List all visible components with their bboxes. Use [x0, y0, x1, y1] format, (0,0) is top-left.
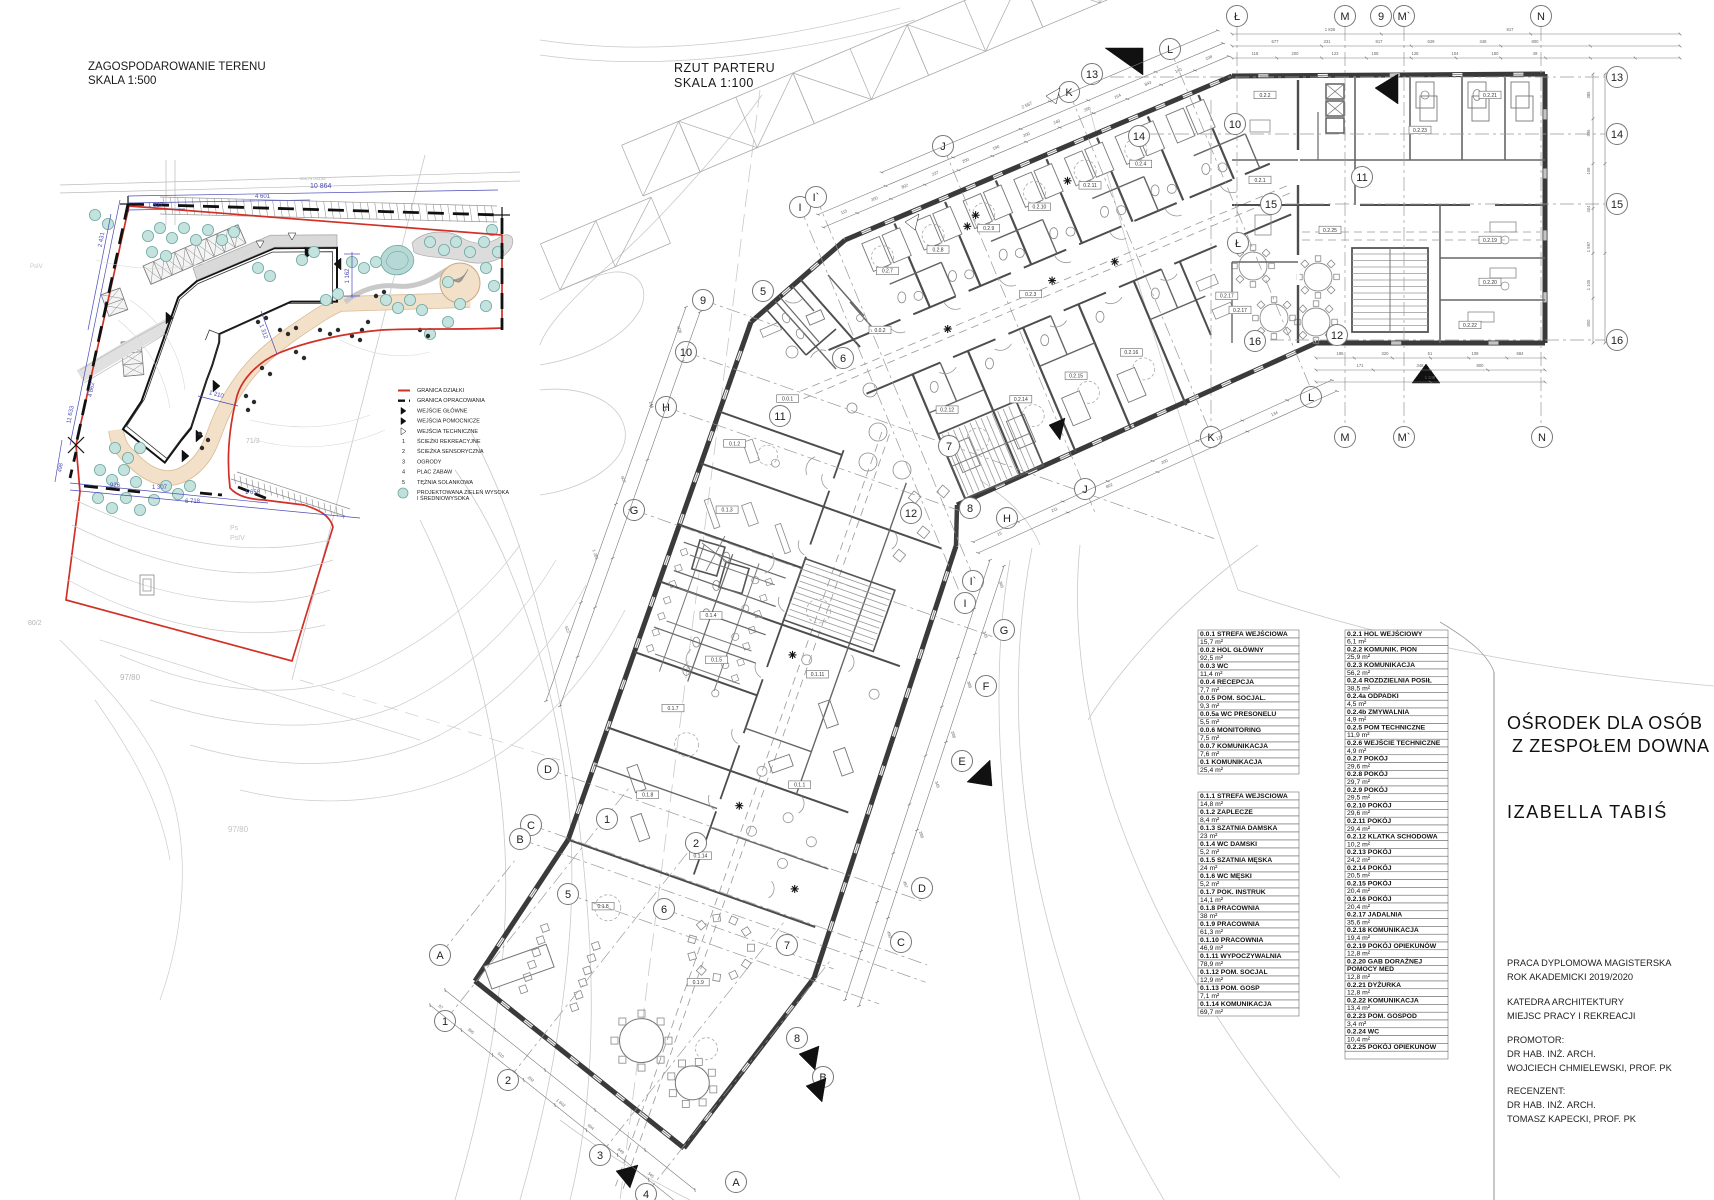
- svg-text:0.2.16: 0.2.16: [1124, 350, 1138, 356]
- svg-text:0.1.11: 0.1.11: [811, 672, 825, 678]
- svg-text:0.2.14 POKÓJ: 0.2.14 POKÓJ: [1347, 863, 1392, 872]
- svg-text:0.2.23 POM. GOSPOD: 0.2.23 POM. GOSPOD: [1347, 1013, 1417, 1020]
- svg-text:4,9 m²: 4,9 m²: [1347, 748, 1367, 755]
- svg-text:0.1.4 WC DAMSKI: 0.1.4 WC DAMSKI: [1200, 841, 1257, 848]
- svg-text:0.1.5: 0.1.5: [711, 658, 722, 664]
- svg-text:5,2 m²: 5,2 m²: [1200, 881, 1220, 888]
- svg-text:0.1.2 ZAPLECZE: 0.1.2 ZAPLECZE: [1200, 809, 1253, 816]
- svg-text:0.2.19: 0.2.19: [1483, 238, 1497, 244]
- svg-text:OŚRODEK DLA OSÓB: OŚRODEK DLA OSÓB: [1507, 712, 1703, 733]
- svg-text:0.1.1 STREFA WEJSCIOWA: 0.1.1 STREFA WEJSCIOWA: [1200, 793, 1288, 800]
- svg-text:29,6 m²: 29,6 m²: [1347, 810, 1371, 817]
- svg-text:0.2.17 JADALNIA: 0.2.17 JADALNIA: [1347, 912, 1402, 919]
- svg-text:29,5 m²: 29,5 m²: [1347, 795, 1371, 802]
- svg-text:L: L: [1308, 392, 1314, 404]
- svg-text:20,4 m²: 20,4 m²: [1347, 888, 1371, 895]
- svg-text:14,8 m²: 14,8 m²: [1200, 801, 1224, 808]
- svg-text:1 627: 1 627: [148, 203, 164, 209]
- svg-text:0.2.23: 0.2.23: [1413, 128, 1427, 134]
- svg-text:123: 123: [1332, 51, 1340, 56]
- svg-text:0.0.7 KOMUNIKACJA: 0.0.7 KOMUNIKACJA: [1200, 743, 1268, 750]
- svg-text:GRANICA OPRACOWANIA: GRANICA OPRACOWANIA: [417, 398, 485, 404]
- svg-text:0.2.20: 0.2.20: [1483, 280, 1497, 286]
- svg-text:4: 4: [402, 470, 405, 476]
- svg-text:9: 9: [1378, 11, 1384, 23]
- svg-text:12,8 m²: 12,8 m²: [1347, 990, 1371, 997]
- svg-text:10: 10: [680, 347, 692, 359]
- svg-text:9,3 m²: 9,3 m²: [1200, 703, 1220, 710]
- svg-text:336: 336: [1586, 129, 1591, 137]
- svg-text:5,5 m²: 5,5 m²: [1200, 719, 1220, 726]
- svg-text:0.2.20 GAB DORAŹNEJ: 0.2.20 GAB DORAŹNEJ: [1347, 956, 1422, 965]
- svg-text:B: B: [516, 834, 523, 846]
- svg-text:0.1.14 KOMUNIKACJA: 0.1.14 KOMUNIKACJA: [1200, 1001, 1272, 1008]
- svg-text:14: 14: [1611, 129, 1623, 141]
- svg-text:PRACA DYPLOMOWA MAGISTERSKA: PRACA DYPLOMOWA MAGISTERSKA: [1507, 958, 1672, 968]
- svg-text:Ps: Ps: [230, 525, 239, 532]
- svg-text:0.1.9: 0.1.9: [693, 980, 704, 986]
- svg-text:108: 108: [1372, 51, 1380, 56]
- svg-text:3: 3: [597, 1150, 603, 1162]
- svg-text:1 162: 1 162: [345, 268, 351, 284]
- svg-text:0.1.1: 0.1.1: [794, 783, 805, 789]
- svg-text:38,5 m²: 38,5 m²: [1347, 685, 1371, 692]
- svg-text:0.1.8: 0.1.8: [642, 792, 653, 798]
- svg-text:171: 171: [1357, 363, 1365, 368]
- svg-text:78,9 m²: 78,9 m²: [1200, 961, 1224, 968]
- svg-text:0.2.15 POKÓJ: 0.2.15 POKÓJ: [1347, 878, 1392, 887]
- svg-text:12: 12: [905, 508, 917, 520]
- svg-text:POMOCY MED: POMOCY MED: [1347, 966, 1394, 973]
- svg-text:0.2.22: 0.2.22: [1463, 323, 1477, 329]
- svg-text:SKALA 1:500: SKALA 1:500: [88, 75, 156, 87]
- svg-text:E: E: [958, 756, 965, 768]
- svg-text:0.2.3: 0.2.3: [1025, 292, 1036, 298]
- svg-text:C: C: [527, 820, 535, 832]
- svg-text:RZUT PARTERU: RZUT PARTERU: [674, 61, 775, 75]
- svg-text:ZAGOSPODAROWANIE TERENU: ZAGOSPODAROWANIE TERENU: [88, 61, 266, 73]
- svg-text:N: N: [1538, 432, 1546, 444]
- svg-text:49: 49: [1533, 51, 1538, 56]
- svg-text:7: 7: [946, 441, 952, 453]
- svg-text:35,6 m²: 35,6 m²: [1347, 919, 1371, 926]
- svg-text:24,2 m²: 24,2 m²: [1347, 857, 1371, 864]
- svg-text:11,4 m²: 11,4 m²: [1200, 671, 1223, 678]
- svg-text:0.2.12 KLATKA SCHODOWA: 0.2.12 KLATKA SCHODOWA: [1347, 834, 1438, 841]
- svg-text:Z ZESPOŁEM DOWNA: Z ZESPOŁEM DOWNA: [1512, 736, 1710, 756]
- svg-text:6: 6: [661, 904, 667, 916]
- svg-text:WEJŚCIA TECHNICZNE: WEJŚCIA TECHNICZNE: [417, 427, 478, 435]
- svg-text:817: 817: [1376, 39, 1384, 44]
- svg-text:I`: I`: [813, 192, 820, 204]
- svg-text:13: 13: [1086, 69, 1098, 81]
- svg-text:8: 8: [967, 503, 973, 515]
- svg-text:0.2.17: 0.2.17: [1233, 308, 1247, 314]
- svg-text:51: 51: [1428, 351, 1433, 356]
- svg-text:0.1.11 WYPOCZYWALNIA: 0.1.11 WYPOCZYWALNIA: [1200, 953, 1282, 960]
- svg-text:11,9 m²: 11,9 m²: [1347, 732, 1370, 739]
- svg-text:800: 800: [1477, 363, 1485, 368]
- svg-text:0.1.2: 0.1.2: [729, 441, 740, 447]
- svg-text:12,9 m²: 12,9 m²: [1200, 977, 1224, 984]
- svg-text:0.2.5 POM TECHNICZNE: 0.2.5 POM TECHNICZNE: [1347, 724, 1426, 731]
- svg-text:29,7 m²: 29,7 m²: [1347, 779, 1371, 786]
- svg-text:0.2.4a ODPADKI: 0.2.4a ODPADKI: [1347, 693, 1399, 700]
- svg-text:15,7 m²: 15,7 m²: [1200, 639, 1224, 646]
- svg-text:0.2.10 POKÓJ: 0.2.10 POKÓJ: [1347, 800, 1392, 809]
- svg-text:180: 180: [1492, 51, 1500, 56]
- svg-text:M`: M`: [1398, 11, 1411, 23]
- svg-text:16: 16: [1249, 336, 1261, 348]
- svg-text:0.0.2 HOL GŁÓWNY: 0.0.2 HOL GŁÓWNY: [1200, 645, 1264, 654]
- svg-text:K: K: [1207, 432, 1215, 444]
- svg-text:D: D: [918, 883, 926, 895]
- svg-text:13: 13: [1611, 72, 1623, 84]
- svg-text:0.2.9 POKÓJ: 0.2.9 POKÓJ: [1347, 785, 1388, 794]
- svg-text:WEJŚCIE GŁÓWNE: WEJŚCIE GŁÓWNE: [417, 406, 468, 414]
- svg-text:0.2.2: 0.2.2: [1259, 93, 1270, 99]
- svg-text:0.1 KOMUNIKACJA: 0.1 KOMUNIKACJA: [1200, 759, 1262, 766]
- svg-text:0.2.14: 0.2.14: [1014, 397, 1028, 403]
- svg-text:5,2 m²: 5,2 m²: [1200, 849, 1220, 856]
- svg-text:46,9 m²: 46,9 m²: [1200, 945, 1224, 952]
- svg-text:629: 629: [1428, 39, 1436, 44]
- svg-text:104: 104: [1452, 51, 1460, 56]
- svg-text:7,6 m²: 7,6 m²: [1200, 751, 1220, 758]
- svg-text:7: 7: [784, 940, 790, 952]
- svg-text:23 m²: 23 m²: [1200, 833, 1218, 840]
- svg-text:0.0.4 RECEPCJA: 0.0.4 RECEPCJA: [1200, 679, 1254, 686]
- svg-text:PsIV: PsIV: [230, 535, 245, 542]
- svg-text:0.0.5 POM. SOCJAL.: 0.0.5 POM. SOCJAL.: [1200, 695, 1266, 702]
- svg-text:MIEJSC PRACY I REKREACJI: MIEJSC PRACY I REKREACJI: [1507, 1011, 1635, 1021]
- svg-text:13,4 m²: 13,4 m²: [1347, 1005, 1371, 1012]
- svg-text:0.0.1 STREFA WEJŚCIOWA: 0.0.1 STREFA WEJŚCIOWA: [1200, 629, 1288, 638]
- svg-text:0.2.18 KOMUNIKACJA: 0.2.18 KOMUNIKACJA: [1347, 927, 1419, 934]
- svg-text:80/2: 80/2: [28, 620, 42, 627]
- svg-text:0.1.3: 0.1.3: [722, 508, 733, 514]
- svg-text:4,5 m²: 4,5 m²: [1347, 701, 1367, 708]
- svg-text:0.2.21: 0.2.21: [1483, 93, 1497, 99]
- svg-text:12,8 m²: 12,8 m²: [1347, 974, 1371, 981]
- svg-text:5: 5: [402, 480, 405, 486]
- svg-text:0.2.16 POKÓJ: 0.2.16 POKÓJ: [1347, 894, 1392, 903]
- svg-text:92,5 m²: 92,5 m²: [1200, 655, 1224, 662]
- svg-text:684: 684: [1517, 351, 1525, 356]
- svg-text:6: 6: [840, 353, 846, 365]
- svg-text:J: J: [1082, 484, 1088, 496]
- svg-text:10,2 m²: 10,2 m²: [1347, 841, 1371, 848]
- svg-text:0.2.17: 0.2.17: [1220, 294, 1234, 300]
- svg-text:0.1.8 PRACOWNIA: 0.1.8 PRACOWNIA: [1200, 905, 1260, 912]
- svg-text:0.2.10: 0.2.10: [1032, 205, 1046, 211]
- svg-text:0.1.6 WC MĘSKI: 0.1.6 WC MĘSKI: [1200, 873, 1252, 880]
- svg-text:20,5 m²: 20,5 m²: [1347, 873, 1371, 880]
- svg-text:14,1 m²: 14,1 m²: [1200, 897, 1224, 904]
- svg-text:800: 800: [1532, 39, 1540, 44]
- svg-text:0.1.10 PRACOWNIA: 0.1.10 PRACOWNIA: [1200, 937, 1264, 944]
- svg-text:200: 200: [1292, 51, 1300, 56]
- svg-text:A: A: [732, 1177, 740, 1189]
- svg-text:0.0.6 MONITORING: 0.0.6 MONITORING: [1200, 727, 1261, 734]
- svg-text:4 601: 4 601: [255, 194, 271, 200]
- svg-text:I: I: [798, 202, 801, 214]
- svg-text:H: H: [1003, 513, 1011, 525]
- svg-text:38 m²: 38 m²: [1200, 913, 1218, 920]
- svg-text:C: C: [897, 937, 905, 949]
- svg-text:14: 14: [1133, 131, 1145, 143]
- svg-text:61,3 m²: 61,3 m²: [1200, 929, 1224, 936]
- svg-text:404: 404: [1586, 205, 1591, 213]
- svg-text:0.2.15: 0.2.15: [1069, 374, 1083, 380]
- svg-text:SKALA 1:100: SKALA 1:100: [674, 76, 754, 90]
- svg-text:2: 2: [402, 449, 405, 455]
- svg-text:I: I: [963, 598, 966, 610]
- svg-text:0.0.2: 0.0.2: [874, 328, 885, 334]
- svg-text:2: 2: [693, 838, 699, 850]
- svg-text:0.0.1: 0.0.1: [782, 396, 793, 402]
- svg-text:10 864: 10 864: [310, 183, 332, 190]
- svg-text:0.2.9: 0.2.9: [983, 226, 994, 232]
- svg-text:M: M: [1340, 11, 1349, 23]
- svg-text:TOMASZ KAPECKI, PROF. PK: TOMASZ KAPECKI, PROF. PK: [1507, 1114, 1637, 1124]
- svg-text:1 348: 1 348: [1425, 375, 1436, 380]
- svg-text:2: 2: [505, 1075, 511, 1087]
- svg-text:0.2.8 POKÓJ: 0.2.8 POKÓJ: [1347, 769, 1388, 778]
- svg-text:320: 320: [1382, 351, 1390, 356]
- svg-text:GRANICA DZIAŁKI: GRANICA DZIAŁKI: [417, 388, 465, 394]
- svg-text:118: 118: [1252, 51, 1259, 56]
- svg-text:3: 3: [402, 459, 405, 465]
- svg-text:8: 8: [794, 1033, 800, 1045]
- svg-text:0.2.6 WEJŚCIE TECHNICZNE: 0.2.6 WEJŚCIE TECHNICZNE: [1347, 738, 1441, 747]
- svg-text:4,9 m²: 4,9 m²: [1347, 717, 1367, 724]
- svg-text:0.1.4: 0.1.4: [705, 613, 716, 619]
- svg-text:7,7 m²: 7,7 m²: [1200, 687, 1220, 694]
- svg-text:A: A: [436, 950, 444, 962]
- svg-text:D: D: [544, 764, 552, 776]
- svg-text:29,4 m²: 29,4 m²: [1347, 826, 1371, 833]
- svg-text:PROJEKTOWANA ZIELEŃ WYSOKA: PROJEKTOWANA ZIELEŃ WYSOKA: [417, 489, 509, 496]
- svg-text:817: 817: [1507, 27, 1515, 32]
- svg-text:8,4 m²: 8,4 m²: [1200, 817, 1220, 824]
- svg-text:ŚCIEŻKA SENSORYCZNA: ŚCIEŻKA SENSORYCZNA: [417, 447, 484, 455]
- svg-text:TĘŻNIA SOLANKOWA: TĘŻNIA SOLANKOWA: [417, 479, 473, 486]
- svg-text:0.2.21 DYŻURKA: 0.2.21 DYŻURKA: [1347, 981, 1401, 989]
- svg-text:128: 128: [1412, 51, 1420, 56]
- svg-text:Ł: Ł: [1234, 11, 1240, 23]
- svg-text:1 658: 1 658: [245, 490, 261, 496]
- svg-text:0.1.14: 0.1.14: [693, 853, 707, 859]
- svg-text:16: 16: [1611, 335, 1623, 347]
- svg-text:9: 9: [700, 295, 706, 307]
- svg-text:0.2.12: 0.2.12: [940, 408, 954, 414]
- svg-text:KATEDRA ARCHITEKTURY: KATEDRA ARCHITEKTURY: [1507, 997, 1624, 1007]
- svg-text:29,6 m²: 29,6 m²: [1347, 763, 1371, 770]
- svg-text:7,5 m²: 7,5 m²: [1200, 735, 1220, 742]
- svg-text:4: 4: [643, 1189, 649, 1200]
- svg-text:10: 10: [1229, 119, 1241, 131]
- svg-text:1: 1: [604, 814, 610, 826]
- svg-text:6,1 m²: 6,1 m²: [1347, 639, 1367, 646]
- svg-text:677: 677: [1272, 39, 1280, 44]
- svg-text:203,79 203,85: 203,79 203,85: [300, 176, 326, 181]
- svg-text:3,4 m²: 3,4 m²: [1347, 1021, 1367, 1028]
- svg-text:WEJŚCIA POMOCNICZE: WEJŚCIA POMOCNICZE: [417, 417, 480, 425]
- svg-text:IZABELLA TABIŚ: IZABELLA TABIŚ: [1507, 801, 1668, 822]
- svg-text:97/80: 97/80: [228, 825, 249, 834]
- svg-text:M`: M`: [1398, 432, 1411, 444]
- svg-text:0.2.22 KOMUNIKACJA: 0.2.22 KOMUNIKACJA: [1347, 997, 1419, 1004]
- svg-text:0.2.7: 0.2.7: [882, 269, 893, 275]
- svg-text:DR HAB. INŻ. ARCH.: DR HAB. INŻ. ARCH.: [1507, 1100, 1596, 1110]
- svg-text:0.2.25 POKÓJ OPIEKUNÓW: 0.2.25 POKÓJ OPIEKUNÓW: [1347, 1042, 1437, 1051]
- svg-text:0.2.25: 0.2.25: [1323, 228, 1337, 234]
- svg-text:97/80: 97/80: [120, 673, 141, 682]
- svg-text:0.2.3 KOMUNIKACJA: 0.2.3 KOMUNIKACJA: [1347, 662, 1415, 669]
- svg-text:0.1.7 POK. INSTRUK: 0.1.7 POK. INSTRUK: [1200, 889, 1266, 896]
- svg-text:0.1.7: 0.1.7: [667, 706, 678, 712]
- svg-text:0.2.4b ZMYWALNIA: 0.2.4b ZMYWALNIA: [1347, 709, 1409, 716]
- svg-text:1 307: 1 307: [152, 485, 168, 491]
- svg-text:7,1 m²: 7,1 m²: [1200, 993, 1220, 1000]
- svg-text:I`: I`: [970, 576, 977, 588]
- svg-text:6 718: 6 718: [185, 499, 201, 505]
- svg-text:348: 348: [1417, 363, 1425, 368]
- svg-text:108: 108: [1586, 167, 1591, 175]
- svg-text:PLAC ZABAW: PLAC ZABAW: [417, 470, 453, 476]
- svg-text:0.2.13 POKÓJ: 0.2.13 POKÓJ: [1347, 847, 1392, 856]
- svg-text:DR HAB. INŻ. ARCH.: DR HAB. INŻ. ARCH.: [1507, 1049, 1596, 1059]
- svg-text:0.2.7 POKÓJ: 0.2.7 POKÓJ: [1347, 754, 1388, 763]
- svg-text:0.2.11 POKÓJ: 0.2.11 POKÓJ: [1347, 816, 1391, 825]
- svg-text:0.1.12 POM. SOCJAL: 0.1.12 POM. SOCJAL: [1200, 969, 1268, 976]
- svg-text:ROK AKADEMICKI 2019/2020: ROK AKADEMICKI 2019/2020: [1507, 972, 1633, 982]
- svg-text:RECENZENT:: RECENZENT:: [1507, 1086, 1565, 1096]
- svg-text:G: G: [1000, 625, 1009, 637]
- svg-text:20,4 m²: 20,4 m²: [1347, 904, 1371, 911]
- svg-text:19,4 m²: 19,4 m²: [1347, 935, 1371, 942]
- svg-text:1 105: 1 105: [1586, 279, 1591, 290]
- svg-text:1: 1: [402, 439, 405, 445]
- svg-text:0.1.9 PRACOWNIA: 0.1.9 PRACOWNIA: [1200, 921, 1260, 928]
- svg-text:0.0.3 WC: 0.0.3 WC: [1200, 663, 1228, 670]
- svg-text:348: 348: [1480, 39, 1488, 44]
- svg-text:OGRODY: OGRODY: [417, 459, 442, 465]
- svg-text:185: 185: [1337, 351, 1345, 356]
- svg-text:0.2.24 WC: 0.2.24 WC: [1347, 1029, 1379, 1036]
- svg-text:0.2.11: 0.2.11: [1083, 183, 1097, 189]
- svg-text:5: 5: [760, 286, 766, 298]
- svg-text:0.2.4: 0.2.4: [1135, 162, 1146, 168]
- svg-text:N: N: [1537, 11, 1545, 23]
- svg-text:69,7 m²: 69,7 m²: [1200, 1009, 1224, 1016]
- svg-text:385: 385: [1586, 91, 1591, 99]
- svg-text:71/3: 71/3: [246, 438, 260, 445]
- svg-text:5: 5: [565, 889, 571, 901]
- svg-text:0.2.1 HOL WEJŚCIOWY: 0.2.1 HOL WEJŚCIOWY: [1347, 629, 1423, 638]
- svg-text:F: F: [983, 681, 990, 693]
- svg-text:PsIV: PsIV: [30, 264, 43, 270]
- svg-text:0.2.4 ROZDZIELNIA POSIŁ: 0.2.4 ROZDZIELNIA POSIŁ: [1347, 678, 1432, 685]
- svg-text:25,9 m²: 25,9 m²: [1347, 654, 1371, 661]
- svg-text:1: 1: [442, 1016, 448, 1028]
- svg-text:0.2.19 POKÓJ OPIEKUNÓW: 0.2.19 POKÓJ OPIEKUNÓW: [1347, 941, 1437, 950]
- svg-text:M: M: [1340, 432, 1349, 444]
- svg-text:10,4 m²: 10,4 m²: [1347, 1036, 1371, 1043]
- svg-text:0.1.5 SZATNIA MĘSKA: 0.1.5 SZATNIA MĘSKA: [1200, 857, 1272, 864]
- svg-text:926: 926: [110, 483, 121, 489]
- svg-text:I ŚREDNIOWYSOKA: I ŚREDNIOWYSOKA: [417, 494, 470, 502]
- svg-text:Ł: Ł: [1235, 238, 1241, 250]
- svg-text:12,8 m²: 12,8 m²: [1347, 951, 1371, 958]
- svg-text:331: 331: [1324, 39, 1332, 44]
- svg-text:800: 800: [1586, 319, 1591, 327]
- svg-text:0.2.2 KOMUNIK. PION: 0.2.2 KOMUNIK. PION: [1347, 646, 1417, 653]
- svg-text:11: 11: [774, 411, 785, 423]
- svg-text:24 m²: 24 m²: [1200, 865, 1218, 872]
- svg-text:0.2.8: 0.2.8: [932, 247, 943, 253]
- svg-text:1 826: 1 826: [1325, 27, 1336, 32]
- svg-text:25,4 m²: 25,4 m²: [1200, 767, 1224, 774]
- svg-text:0.2.1: 0.2.1: [1254, 178, 1265, 184]
- svg-text:11: 11: [1356, 172, 1367, 184]
- svg-text:15: 15: [1611, 199, 1623, 211]
- svg-text:108: 108: [1472, 351, 1480, 356]
- svg-text:0.1.13 POM. GOSP: 0.1.13 POM. GOSP: [1200, 985, 1260, 992]
- svg-text:ŚCIEŻKI REKREACYJNE: ŚCIEŻKI REKREACYJNE: [417, 437, 481, 445]
- svg-text:15: 15: [1265, 199, 1277, 211]
- svg-text:56,2 m²: 56,2 m²: [1347, 670, 1371, 677]
- svg-text:12: 12: [1331, 330, 1343, 342]
- svg-text:0.1.3 SZATNIA DAMSKA: 0.1.3 SZATNIA DAMSKA: [1200, 825, 1278, 832]
- svg-text:WOJCIECH CHMIELEWSKI, PROF. PK: WOJCIECH CHMIELEWSKI, PROF. PK: [1507, 1063, 1673, 1073]
- svg-text:1 597: 1 597: [1586, 241, 1591, 252]
- svg-text:0.0.5a WC PRESONELU: 0.0.5a WC PRESONELU: [1200, 711, 1276, 718]
- svg-text:PROMOTOR:: PROMOTOR:: [1507, 1035, 1564, 1045]
